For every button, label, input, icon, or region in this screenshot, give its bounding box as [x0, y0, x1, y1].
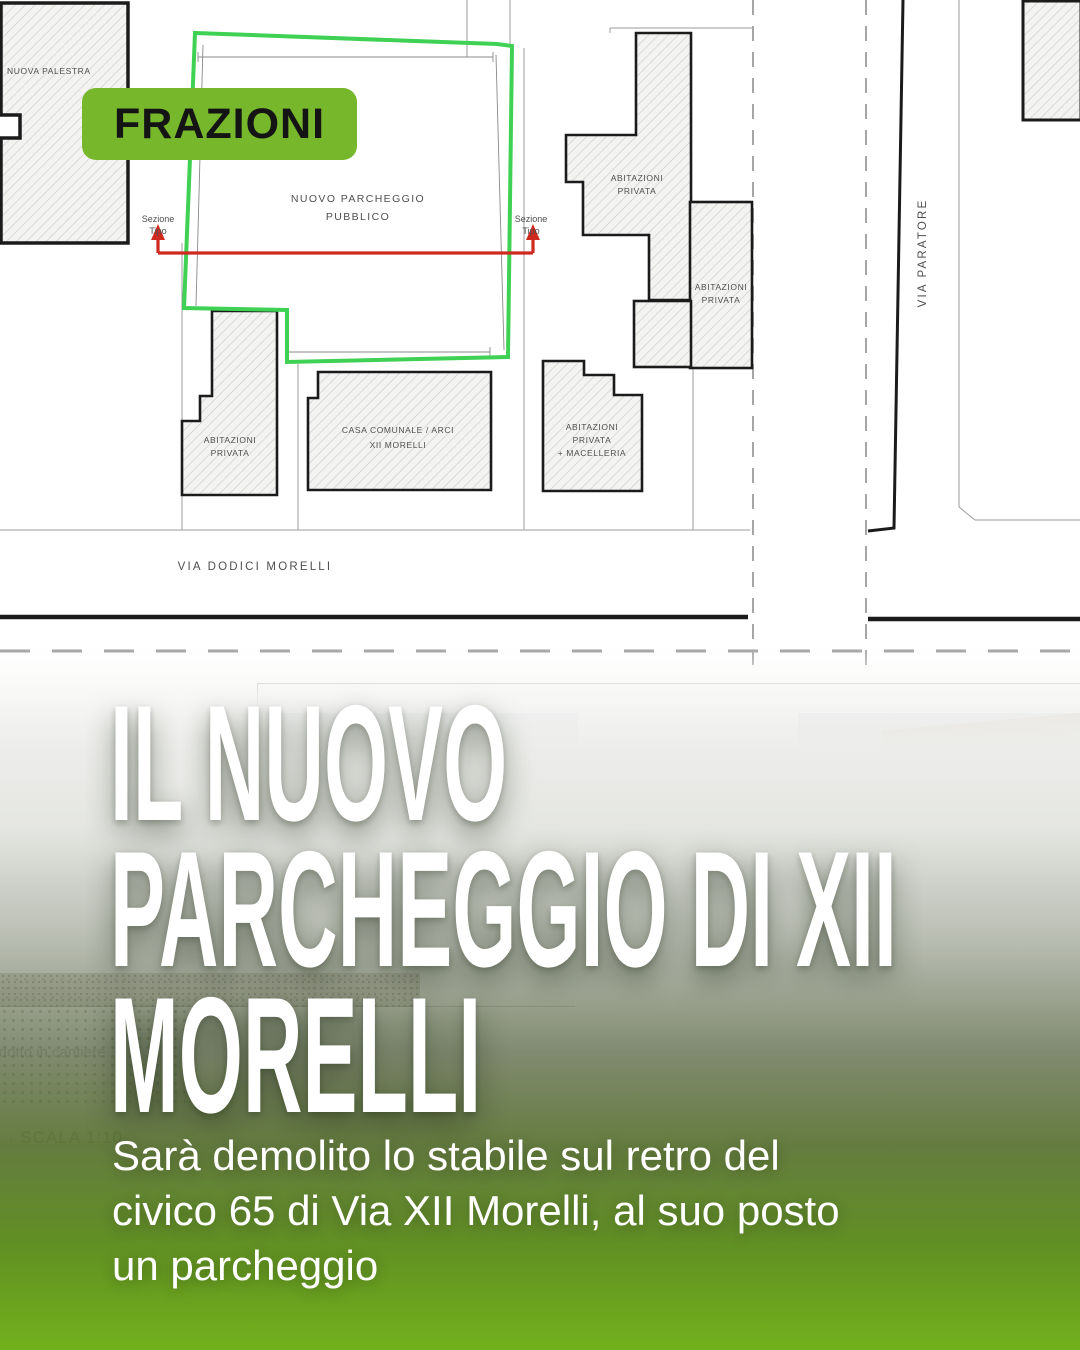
post-card: NUOVA PALESTRA NUOVO PARCHEGGIO PUBBLICO…: [0, 0, 1080, 1350]
title-line-3: MORELLI: [110, 982, 897, 1128]
category-badge: FRAZIONI: [82, 88, 357, 160]
label-macelleria-3: + MACELLERIA: [558, 448, 626, 458]
label-abitazioni2-1: ABITAZIONI: [695, 282, 748, 292]
label-macelleria-1: ABITAZIONI: [566, 422, 619, 432]
label-sezione-right-1: Sezione: [515, 214, 548, 224]
road-edge-paratore: [868, 0, 903, 531]
subtitle-line-3: un parcheggio: [112, 1238, 840, 1293]
title-line-2: PARCHEGGIO DI XII: [110, 836, 897, 982]
label-sezione-left-2: Tipo: [149, 226, 166, 236]
label-abitazioni3-2: PRIVATA: [211, 448, 250, 458]
building-small-square: [634, 301, 691, 367]
label-nuova-palestra: NUOVA PALESTRA: [7, 66, 91, 76]
subtitle-line-1: Sarà demolito lo stabile sul retro del: [112, 1128, 840, 1183]
building-top-right: [1023, 1, 1080, 120]
label-abitazioni1-2: PRIVATA: [618, 186, 657, 196]
dashed-boundaries: [753, 0, 866, 668]
building-abitazioni-3: [182, 311, 277, 495]
scale-note: · SCALA 1:10: [8, 1128, 123, 1148]
post-title: IL NUOVO PARCHEGGIO DI XII MORELLI: [110, 690, 897, 1128]
label-macelleria-2: PRIVATA: [573, 435, 612, 445]
label-sezione-right-2: Tipo: [522, 226, 539, 236]
label-parcheggio-1: NUOVO PARCHEGGIO: [291, 193, 425, 205]
label-abitazioni1-1: ABITAZIONI: [611, 173, 664, 183]
label-casa-2: XII MORELLI: [370, 440, 427, 450]
building-abitazioni-1: [566, 33, 691, 300]
label-abitazioni2-2: PRIVATA: [702, 295, 741, 305]
label-via-paratore: VIA PARATORE: [917, 199, 929, 308]
label-sezione-left-1: Sezione: [142, 214, 175, 224]
section-line: [151, 224, 540, 253]
subtitle-line-2: civico 65 di Via XII Morelli, al suo pos…: [112, 1183, 840, 1238]
title-line-1: IL NUOVO: [110, 690, 897, 836]
label-abitazioni3-1: ABITAZIONI: [204, 435, 257, 445]
label-parcheggio-2: PUBBLICO: [326, 211, 390, 223]
sheet-text-fragment: ondotto in cantiere: [0, 1044, 105, 1061]
label-casa-1: CASA COMUNALE / ARCI: [342, 425, 454, 435]
label-via-dodici-morelli: VIA DODICI MORELLI: [178, 561, 333, 573]
post-subtitle: Sarà demolito lo stabile sul retro del c…: [112, 1128, 840, 1293]
